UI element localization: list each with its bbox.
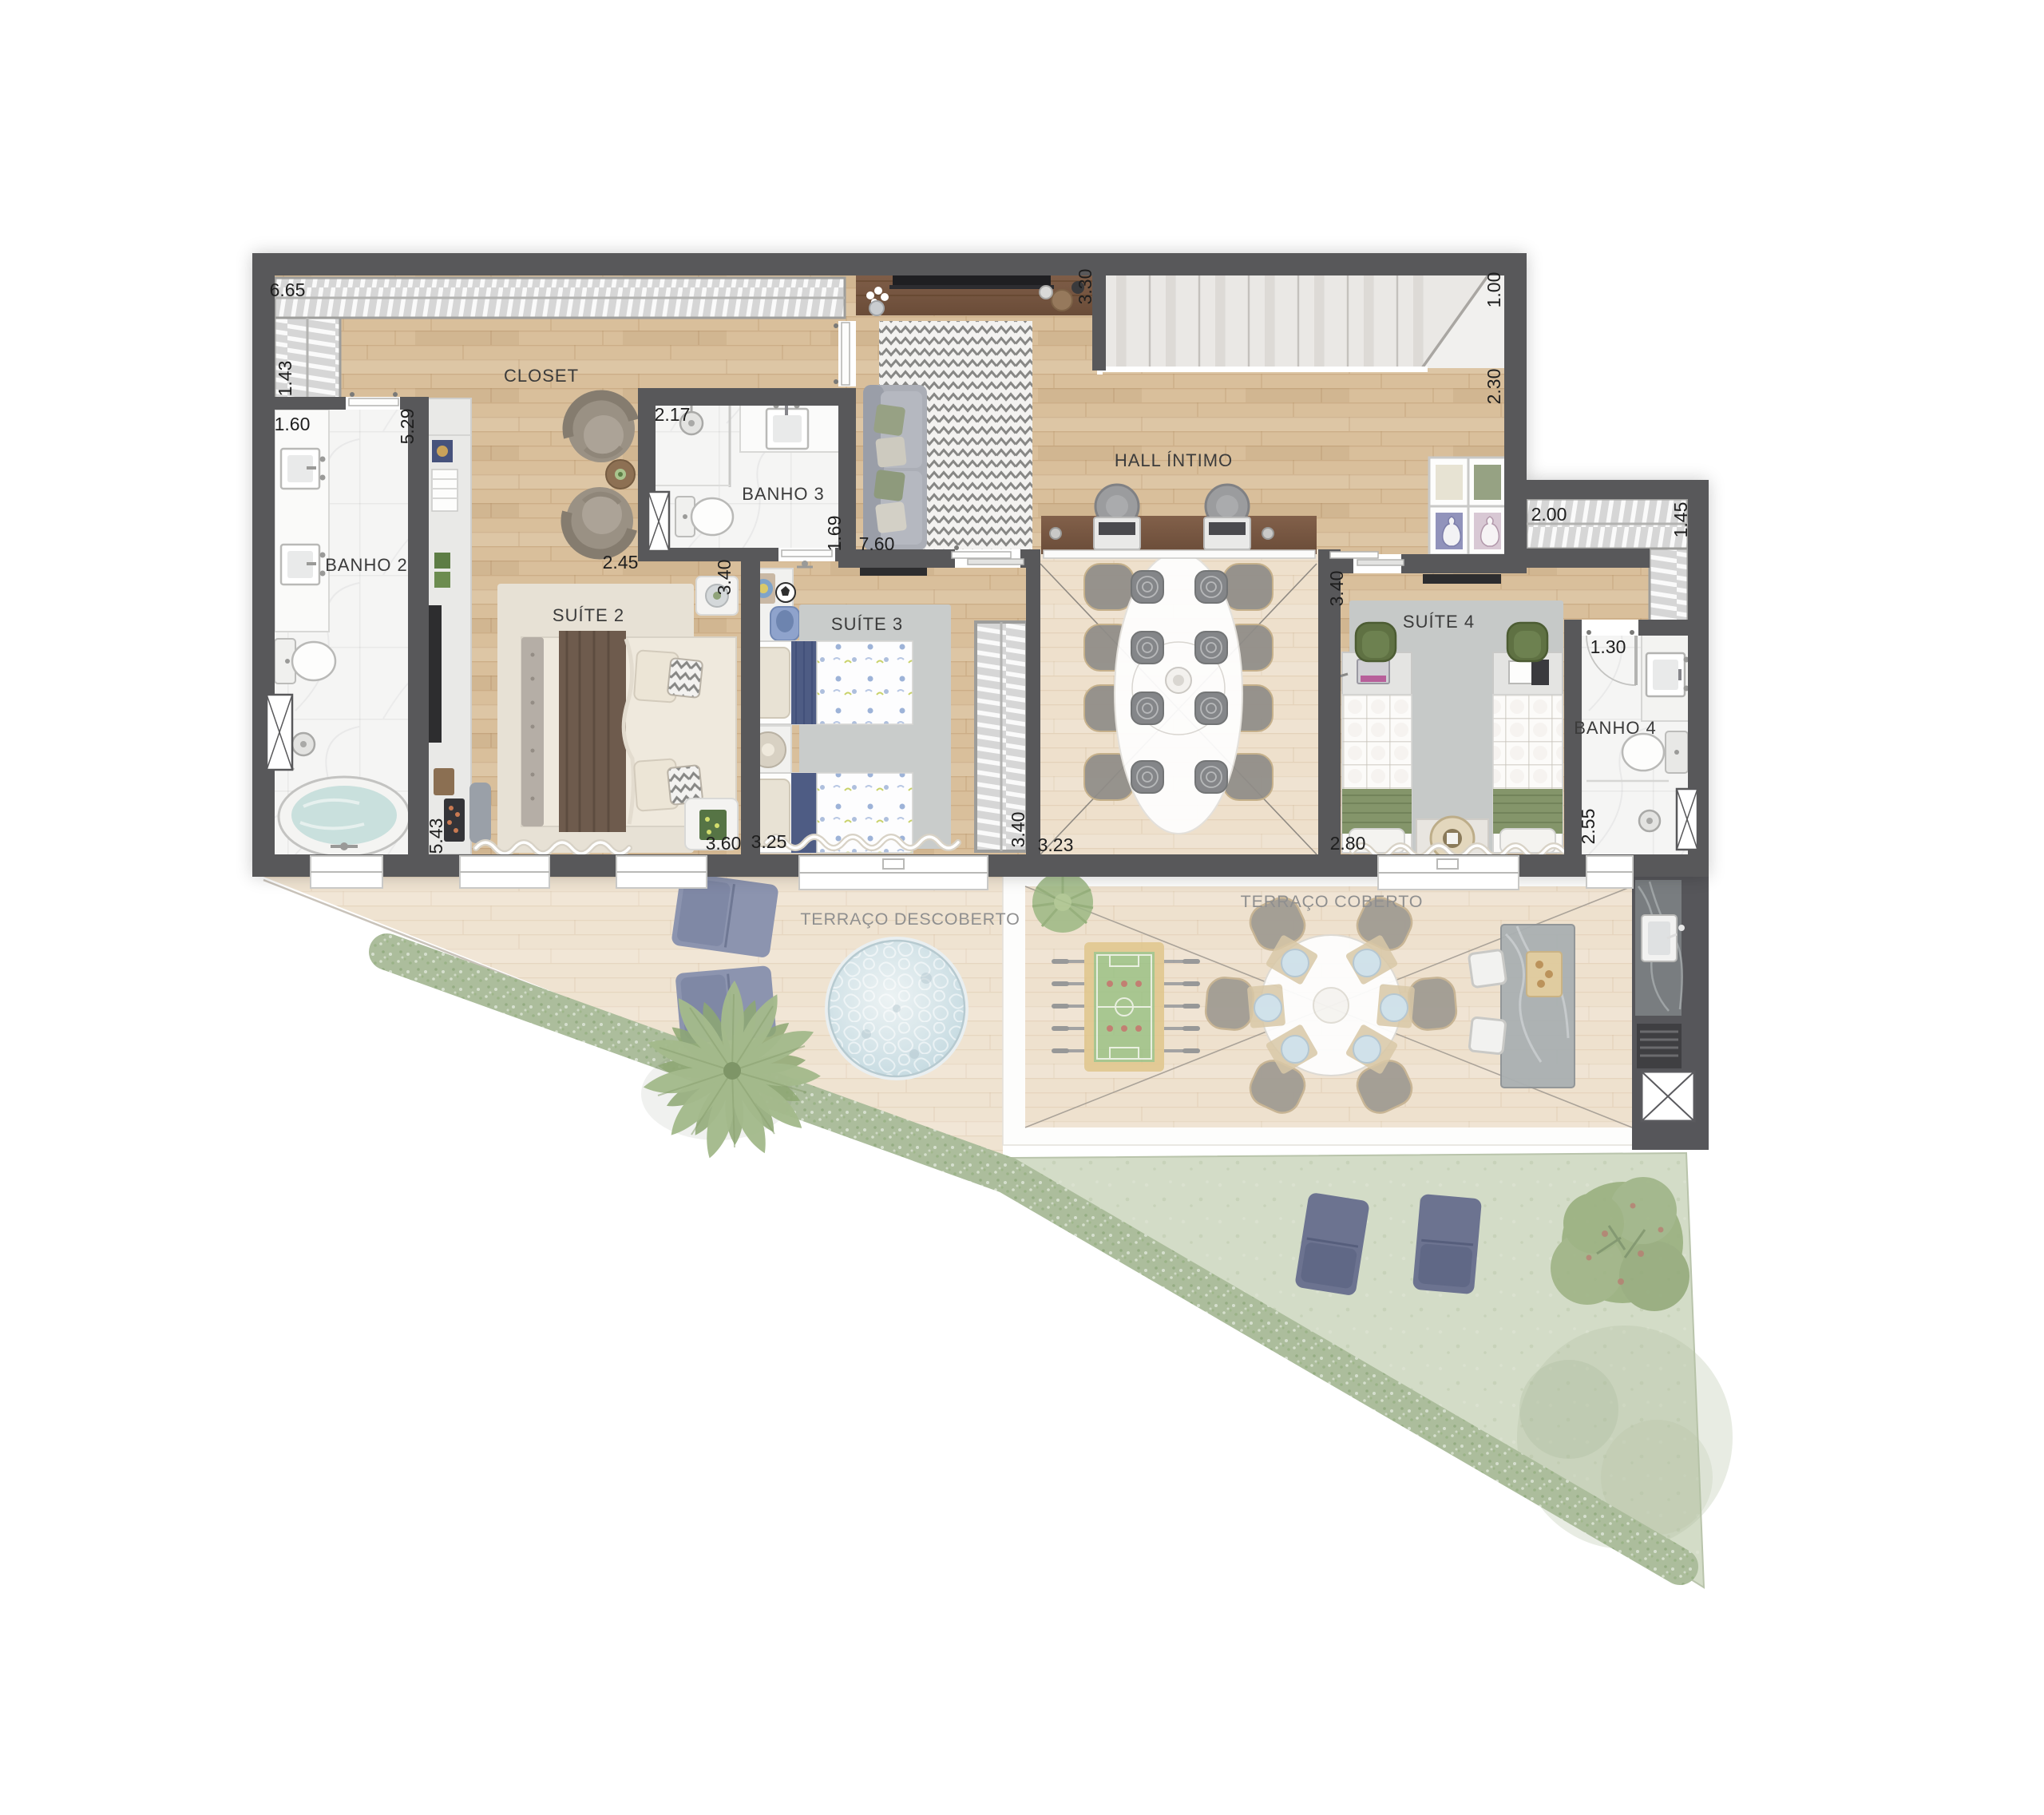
svg-text:1.43: 1.43 (275, 361, 295, 397)
svg-text:5.29: 5.29 (397, 409, 418, 445)
svg-text:SUÍTE 4: SUÍTE 4 (1403, 612, 1475, 632)
svg-text:BANHO 2: BANHO 2 (325, 555, 408, 575)
svg-text:2.17: 2.17 (655, 404, 691, 425)
svg-text:HALL ÍNTIMO: HALL ÍNTIMO (1115, 450, 1233, 470)
svg-text:1.60: 1.60 (275, 414, 311, 434)
svg-text:3.40: 3.40 (714, 560, 735, 596)
svg-text:TERRAÇO COBERTO: TERRAÇO COBERTO (1241, 892, 1424, 911)
svg-text:CLOSET: CLOSET (504, 366, 579, 386)
svg-text:3.60: 3.60 (706, 833, 742, 854)
svg-text:1.00: 1.00 (1483, 272, 1504, 308)
svg-text:3.23: 3.23 (1038, 834, 1074, 855)
svg-text:2.55: 2.55 (1578, 809, 1598, 845)
svg-text:1.45: 1.45 (1670, 502, 1691, 538)
svg-text:SUÍTE 2: SUÍTE 2 (553, 605, 624, 625)
svg-text:BANHO 3: BANHO 3 (742, 484, 825, 504)
svg-text:1.69: 1.69 (824, 516, 845, 552)
svg-text:3.40: 3.40 (1008, 812, 1028, 848)
svg-text:SUÍTE 3: SUÍTE 3 (831, 614, 903, 634)
svg-text:3.40: 3.40 (1326, 571, 1347, 607)
svg-text:3.25: 3.25 (751, 831, 787, 852)
svg-text:1.30: 1.30 (1590, 636, 1626, 657)
svg-text:5.43: 5.43 (426, 818, 446, 854)
svg-text:TERRAÇO DESCOBERTO: TERRAÇO DESCOBERTO (800, 909, 1020, 929)
svg-text:2.45: 2.45 (603, 552, 639, 573)
svg-text:3.30: 3.30 (1075, 269, 1095, 305)
svg-text:2.30: 2.30 (1483, 369, 1504, 405)
svg-text:6.65: 6.65 (270, 279, 306, 300)
svg-text:7.60: 7.60 (859, 533, 895, 554)
svg-text:2.00: 2.00 (1531, 504, 1567, 525)
svg-text:2.80: 2.80 (1330, 833, 1366, 854)
svg-text:BANHO 4: BANHO 4 (1574, 718, 1657, 738)
